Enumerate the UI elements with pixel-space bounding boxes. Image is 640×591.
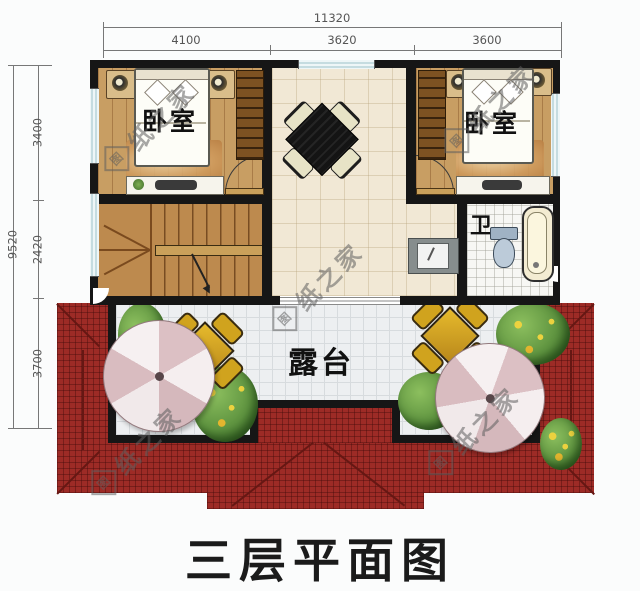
terrace-label: 露台 (288, 338, 354, 382)
wardrobe-left (236, 70, 264, 160)
stair-winder (98, 249, 150, 251)
dim-left-seg-1: 3400 (32, 111, 45, 155)
page-title: 三层平面图 (0, 522, 640, 591)
desk-object (482, 180, 522, 190)
watermark-seal: 图 (272, 306, 297, 331)
dim-left-total: 9520 (7, 223, 20, 267)
dim-top-seg-1: 4100 (164, 34, 208, 47)
dim-tick (414, 45, 415, 55)
terrace-notch-roof (258, 408, 392, 443)
dim-top-total: 11320 (310, 12, 354, 25)
bedroom-right-door (416, 188, 455, 195)
floor-plan-canvas: 11320 4100 3620 3600 9520 3400 2420 3700 (0, 0, 640, 591)
dim-left-seg-2: 2420 (32, 228, 45, 272)
dim-tick (33, 298, 44, 299)
stair-winder (104, 225, 151, 251)
watermark-seal: 图 (428, 450, 453, 475)
dim-tick (270, 45, 271, 55)
dim-tick (103, 22, 104, 58)
lamp-icon (211, 75, 227, 91)
toilet-bowl (493, 238, 515, 268)
partition-wall (98, 194, 228, 204)
window-dining (298, 60, 375, 69)
watermark-seal: 图 (91, 470, 116, 495)
roof-ridge (82, 350, 84, 450)
window-stairs (90, 193, 99, 277)
lamp-icon (112, 75, 128, 91)
bedroom-left-door (225, 188, 264, 195)
desk-plant (133, 179, 144, 190)
watermark-seal: 图 (104, 146, 129, 171)
dim-left-seg-3: 3700 (32, 342, 45, 386)
partition-wall (262, 194, 272, 296)
dim-top-seg-line (103, 50, 561, 51)
partition-wall (406, 194, 553, 204)
window-bedroom-right (551, 93, 560, 177)
bathroom-wall (457, 204, 467, 236)
dim-top-seg-3: 3600 (465, 34, 509, 47)
bathtub-drain (533, 262, 539, 268)
dim-tick (33, 200, 44, 201)
plant-with-flowers (540, 418, 582, 470)
wardrobe-right (418, 70, 446, 160)
watermark-seal: 图 (444, 128, 469, 153)
dim-tick (561, 22, 562, 58)
stair-winder (104, 249, 151, 275)
stair-winder-edge (150, 204, 152, 296)
partition-wall (406, 68, 416, 155)
dim-top-total-line (103, 27, 561, 28)
desk-object (155, 180, 197, 190)
staircase (98, 204, 262, 296)
stair-railing (155, 245, 264, 256)
dim-top-seg-2: 3620 (320, 34, 364, 47)
dim-tick (8, 428, 52, 429)
dim-tick (8, 65, 52, 66)
